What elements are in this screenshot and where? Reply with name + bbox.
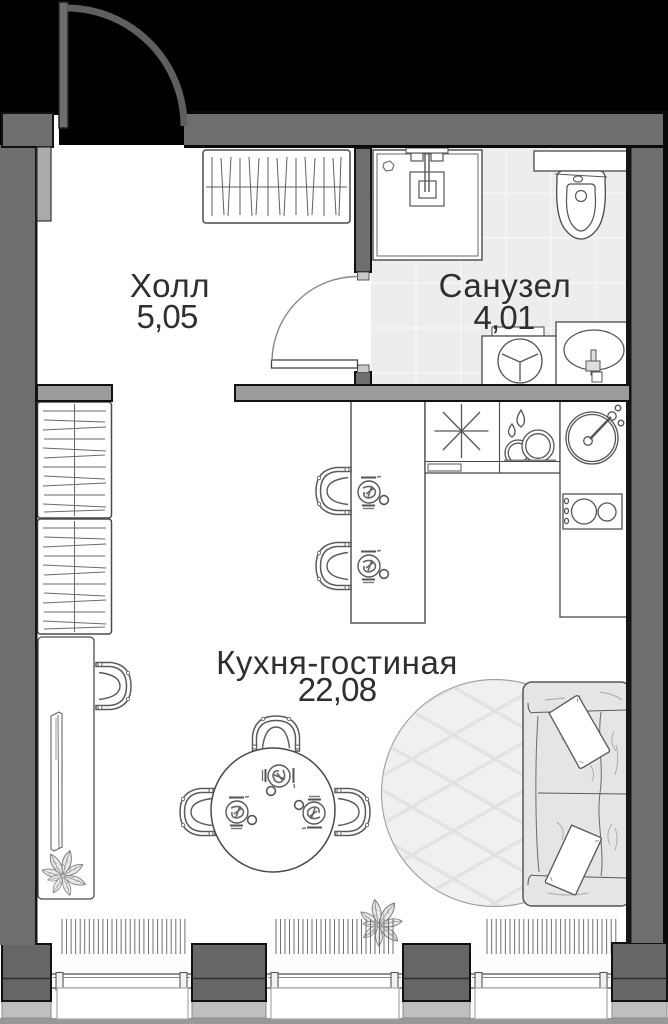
svg-text:4,01: 4,01 [473, 299, 534, 336]
svg-text:22,08: 22,08 [298, 671, 377, 708]
svg-text:5,05: 5,05 [136, 298, 197, 335]
